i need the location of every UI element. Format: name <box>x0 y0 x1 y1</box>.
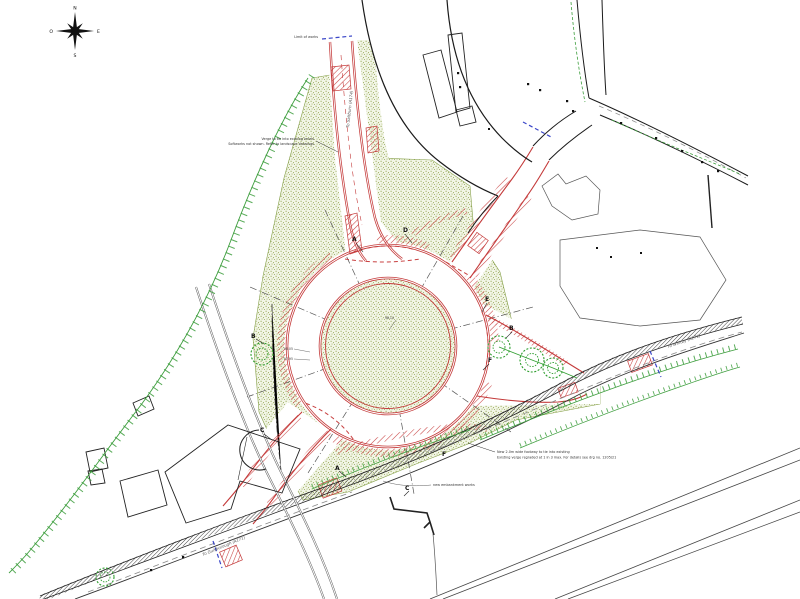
section-letter-c: C <box>260 427 265 434</box>
level-label: 98.05 <box>284 347 293 351</box>
level-label: 97.95 <box>284 357 293 361</box>
limit-of-works-label: Limit of works <box>294 35 318 39</box>
footway-note-line1: New 2.0m wide footway to tie into existi… <box>497 450 570 454</box>
section-letter-b: B <box>509 325 514 332</box>
level-label: 98.10 <box>385 316 394 320</box>
footway-note-line2: Existing verge regraded at 1 in 3 max. F… <box>497 456 616 460</box>
compass-north-label: N <box>73 6 76 12</box>
compass-east-label: E <box>97 29 100 35</box>
compass-south-label: S <box>74 53 77 59</box>
section-letter-f: F <box>442 451 446 458</box>
roundabout-site-plan: Verge to tie into existing levels Softwo… <box>0 0 800 599</box>
section-letter-a: A <box>352 236 357 243</box>
section-letter-d: D <box>403 227 408 234</box>
section-letter-b: B <box>251 333 256 340</box>
compass-west-label: O <box>49 29 53 35</box>
verge-note-line2: Softworks not shown. Refer to landscape … <box>228 142 314 146</box>
section-letter-a: A <box>335 465 340 472</box>
site-plan-page: Verge to tie into existing levels Softwo… <box>0 0 800 599</box>
verge-note-line1: Verge to tie into existing levels <box>261 137 314 141</box>
section-letter-c: C <box>405 485 410 492</box>
section-letter-e: E <box>485 296 489 303</box>
embankment-note: new embankment works <box>433 483 475 487</box>
section-letter-f: F <box>488 357 492 364</box>
compass-rose-icon: N S E O <box>49 6 100 60</box>
